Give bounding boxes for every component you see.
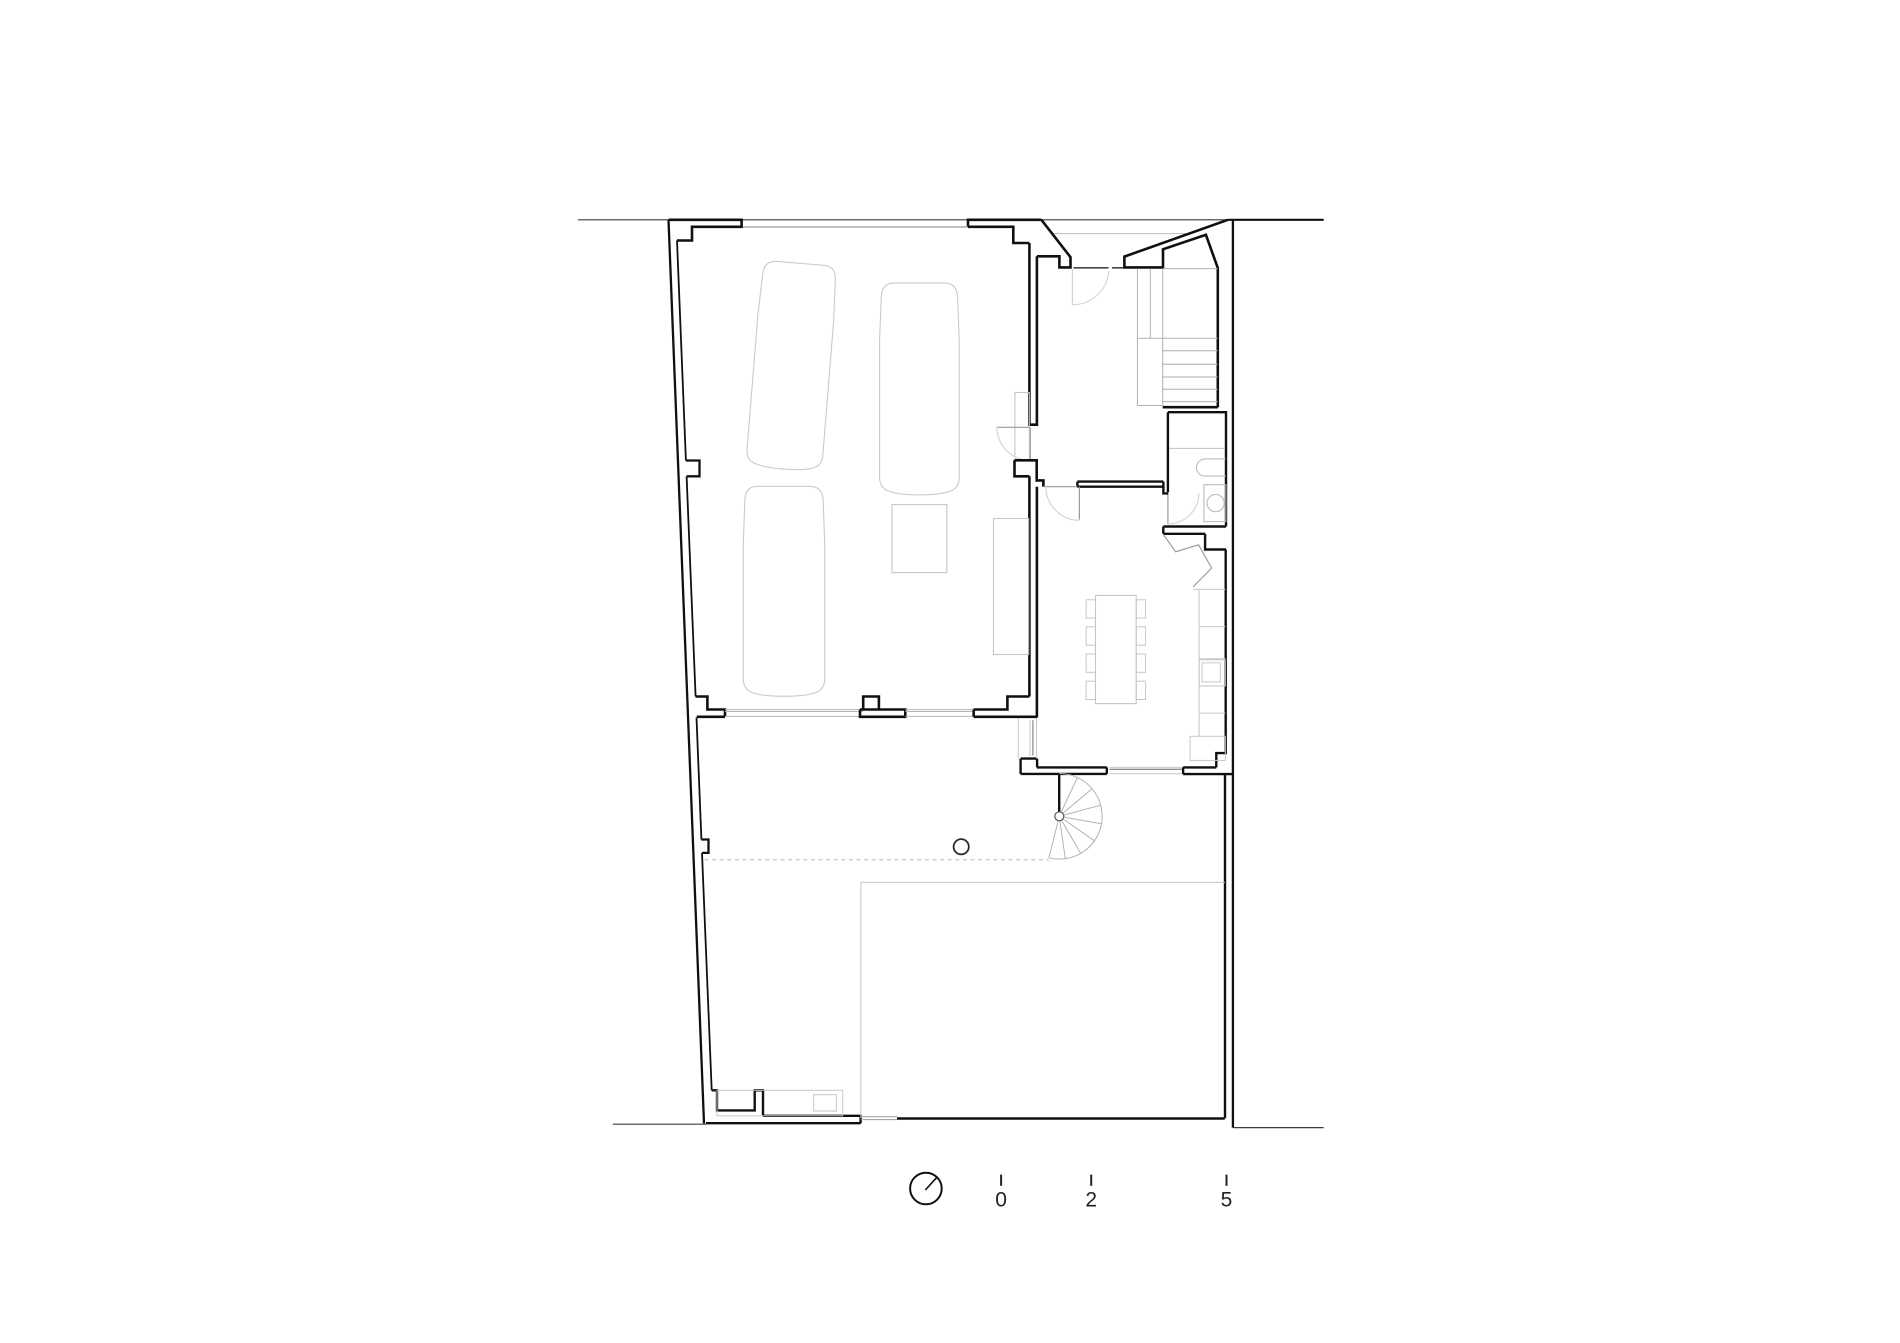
svg-text:5: 5 (1221, 1189, 1233, 1212)
svg-text:0: 0 (995, 1189, 1007, 1212)
svg-text:2: 2 (1085, 1189, 1097, 1212)
